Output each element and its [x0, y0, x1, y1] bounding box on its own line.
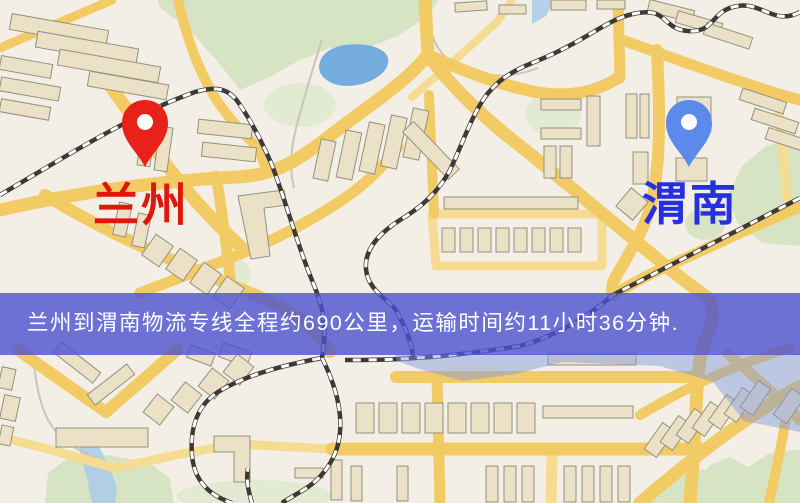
logistics-route-map: 兰州到渭南物流专线全程约690公里，运输时间约11小时36分钟. 兰州 渭南 [0, 0, 800, 503]
map-layers [0, 0, 800, 503]
destination-label: 渭南 [642, 178, 738, 230]
destination-pin-hole [681, 114, 697, 130]
route-info-text: 兰州到渭南物流专线全程约690公里，运输时间约11小时36分钟. [27, 311, 679, 335]
origin-pin-hole [137, 114, 153, 130]
origin-label: 兰州 [93, 179, 189, 231]
map-canvas[interactable]: 兰州到渭南物流专线全程约690公里，运输时间约11小时36分钟. 兰州 渭南 [0, 0, 800, 503]
